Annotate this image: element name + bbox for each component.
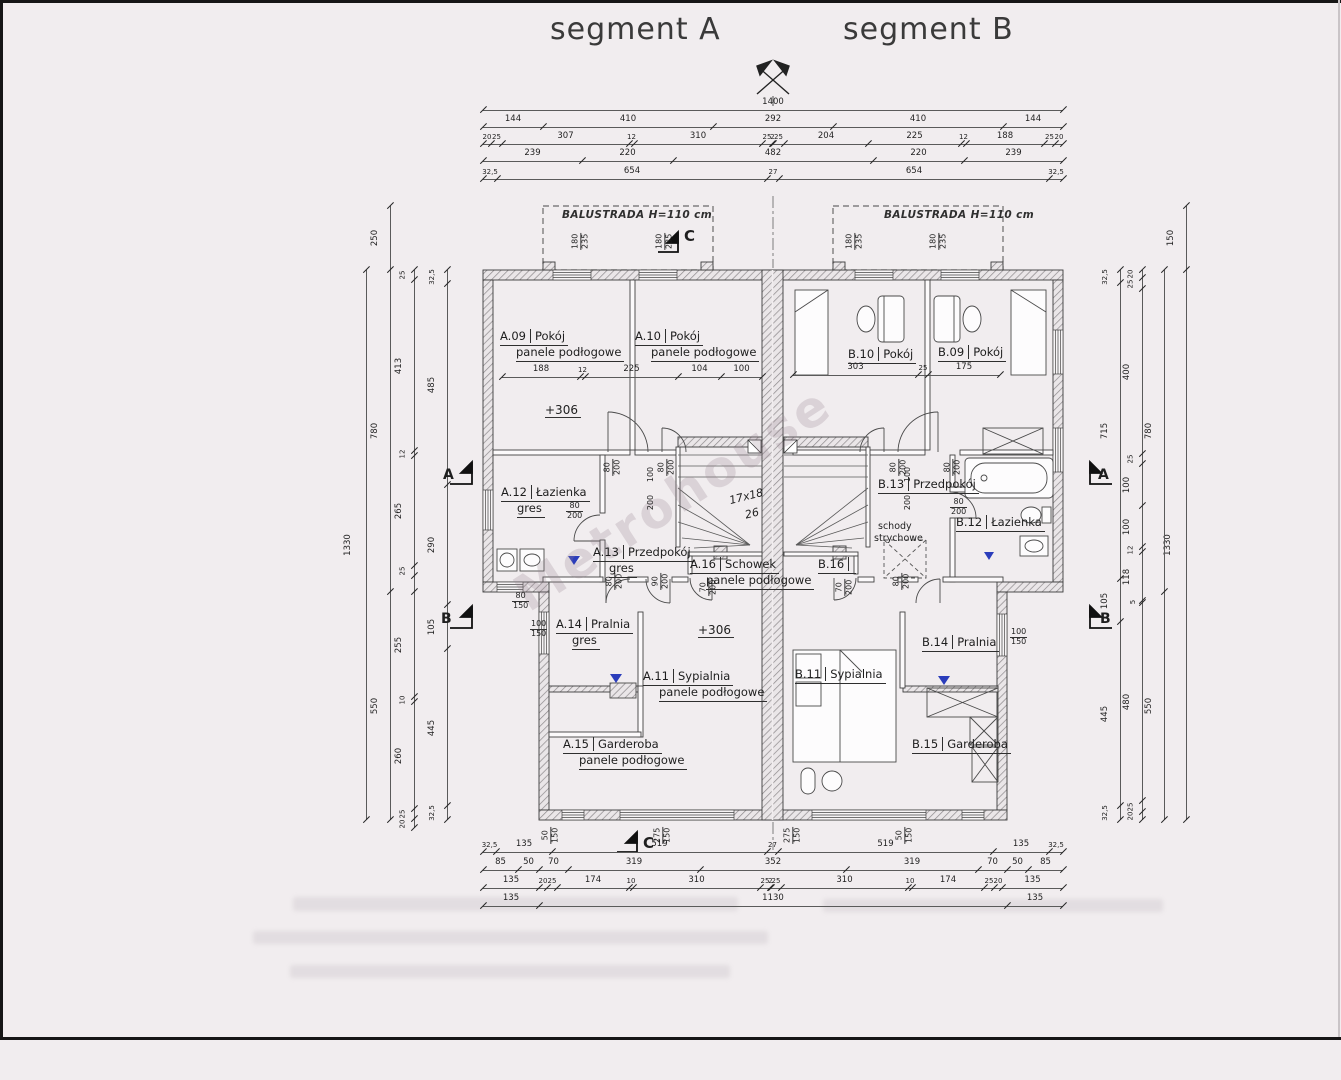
dimension-label: 265 [394, 503, 404, 519]
door-size-label: 180235 [655, 233, 674, 250]
dimension-label: 32,5 [482, 841, 498, 849]
dimension-line [483, 127, 1063, 128]
dimension-label: 32,5 [1101, 269, 1109, 285]
dimension-tick [387, 816, 394, 823]
dimension-label: 25 [399, 567, 407, 576]
dimension-tick [1060, 157, 1067, 164]
dimension-label: 204 [818, 131, 834, 141]
dimension-label: 135 [1024, 875, 1040, 885]
room-label: B.11Sypialnia [795, 668, 886, 684]
dimension-line [483, 161, 1063, 162]
dimension-label: 25 [1127, 802, 1135, 811]
dimension-label: 85 [495, 857, 506, 867]
dimension-label: 135 [1027, 893, 1043, 903]
room-label: A.15Garderobapanele podłogowe [563, 738, 687, 770]
dimension-label: 50 [1012, 857, 1023, 867]
dimension-tick [1060, 140, 1067, 147]
dimension-label: 12 [627, 133, 636, 141]
dimension-label: 310 [836, 875, 852, 885]
dimension-line [483, 888, 1063, 889]
section-letter: C [684, 227, 695, 245]
dimension-label: 144 [505, 114, 521, 124]
dimension-label: 25 [1127, 455, 1135, 464]
dimension-tick [444, 816, 451, 823]
note-label: 200 [903, 495, 912, 510]
dimension-label: 25 [399, 810, 407, 819]
dimension-label: 654 [624, 166, 640, 176]
door-size-label: 70200 [835, 579, 854, 596]
dimension-label: 27 [769, 168, 778, 176]
dimension-label: 290 [427, 537, 437, 553]
dimension-label: 352 [765, 857, 781, 867]
room-label: B.13Przedpokój [878, 478, 979, 494]
note-label: 26 [744, 505, 761, 521]
dimension-label: 70 [548, 857, 559, 867]
room-label: A.11Sypialniapanele podłogowe [643, 670, 767, 702]
dimension-label: 150 [1166, 230, 1176, 246]
dimension-label: 174 [940, 875, 956, 885]
dimension-label: 220 [910, 148, 926, 158]
dimension-label: 12 [578, 366, 587, 374]
dimension-line [1186, 206, 1187, 820]
door-size-label: 50150 [541, 827, 560, 844]
dimension-line [390, 206, 391, 820]
dimension-label: 32,5 [1101, 805, 1109, 821]
door-size-label: 180235 [845, 233, 864, 250]
dimension-label: 135 [503, 893, 519, 903]
dimension-tick [1117, 816, 1124, 823]
dimension-label: 307 [557, 131, 573, 141]
door-size-label: 180235 [929, 233, 948, 250]
room-label: A.16Schowekpanele podłogowe [690, 558, 814, 590]
dimension-label: 10 [906, 877, 915, 885]
section-letter: A [443, 467, 454, 483]
dimension-label: 225 [906, 131, 922, 141]
dimension-label: 20 [1127, 270, 1135, 279]
door-size-label: 50150 [895, 827, 914, 844]
dimension-label: 445 [427, 719, 437, 735]
dimension-label: 25 [548, 877, 557, 885]
dimension-label: 32,5 [428, 269, 436, 285]
dimension-tick [1060, 866, 1067, 873]
dimension-label: 1400 [762, 97, 784, 107]
dimension-label: 255 [394, 636, 404, 652]
dimension-tick [1060, 884, 1067, 891]
room-label: A.13Przedpokójgres [593, 546, 694, 578]
room-label: B.10Pokój [848, 348, 916, 364]
section-letter: B [1100, 611, 1111, 627]
dimension-label: 220 [619, 148, 635, 158]
dimension-label: 410 [620, 114, 636, 124]
dimension-label: 85 [1040, 857, 1051, 867]
dimension-tick [363, 816, 370, 823]
dimension-label: 27 [768, 841, 777, 849]
dimension-label: 32,5 [482, 168, 498, 176]
dimension-label: 12 [399, 449, 407, 458]
section-letter: B [441, 611, 452, 627]
dimension-label: 239 [1005, 148, 1021, 158]
dimension-label: 25 [399, 271, 407, 280]
dimension-label: 413 [394, 357, 404, 373]
dimension-line [483, 906, 1063, 907]
dimension-label: 445 [1100, 706, 1110, 722]
door-size-label: 80200 [603, 459, 622, 476]
door-size-label: 100150 [1010, 628, 1027, 647]
note-label: 200 [646, 495, 655, 510]
dimension-label: 104 [691, 364, 707, 374]
dimension-tick [1060, 175, 1067, 182]
dimension-label: 310 [688, 875, 704, 885]
dimension-line [1164, 270, 1165, 820]
dimension-label: 20 [539, 877, 548, 885]
dimension-label: 260 [394, 747, 404, 763]
dimension-label: 310 [690, 131, 706, 141]
note-label: strychowe [874, 533, 923, 544]
note-label: 17x18 [728, 486, 765, 507]
dimension-label: 20 [399, 819, 407, 828]
door-size-label: 275150 [783, 827, 802, 844]
room-label: B.09Pokój [938, 346, 1006, 362]
door-size-label: 80200 [943, 459, 962, 476]
dimension-tick [759, 373, 766, 380]
room-label: B.14Pralnia [922, 636, 999, 652]
dimension-label: 20 [994, 877, 1003, 885]
dimension-label: 188 [533, 364, 549, 374]
dimension-label: 25 [774, 133, 783, 141]
note-label: 100 [646, 467, 655, 482]
dimension-label: 519 [877, 839, 893, 849]
dimension-label: 480 [1122, 694, 1132, 710]
dimension-line [414, 270, 415, 828]
dimension-label: 12 [1127, 545, 1135, 554]
dimension-label: 485 [427, 376, 437, 392]
dimension-label: 32,5 [1048, 168, 1064, 176]
dimension-line [366, 270, 367, 820]
dimension-label: 25 [492, 133, 501, 141]
door-size-label: 80200 [950, 498, 967, 517]
dimension-label: 1330 [343, 534, 353, 556]
dimension-label: 25 [1127, 279, 1135, 288]
dimension-tick [997, 371, 1004, 378]
dimension-label: 105 [1100, 592, 1110, 608]
dimension-label: 105 [427, 619, 437, 635]
room-label: A.12Łazienkagres [501, 486, 590, 518]
dimension-label: 144 [1025, 114, 1041, 124]
door-size-label: 275150 [653, 827, 672, 844]
dimension-label: 50 [523, 857, 534, 867]
dimension-label: 550 [1144, 698, 1154, 714]
dimension-label: 1130 [762, 893, 784, 903]
dimension-tick [1161, 816, 1168, 823]
dimension-label: 482 [765, 148, 781, 158]
dimension-label: 10 [627, 877, 636, 885]
dimension-tick [411, 824, 418, 831]
section-letter: A [1098, 467, 1109, 483]
level-marker: +306 [698, 623, 734, 638]
dimension-label: 550 [370, 698, 380, 714]
dimension-line [483, 852, 1063, 853]
room-label: A.09Pokójpanele podłogowe [500, 330, 624, 362]
dimension-label: 250 [370, 230, 380, 246]
level-marker: +306 [545, 403, 581, 418]
dimension-label: 25 [985, 877, 994, 885]
dimension-label: 10 [399, 695, 407, 704]
dimension-label: 715 [1100, 423, 1110, 439]
dimension-line [483, 110, 1063, 111]
dimension-label: 400 [1122, 363, 1132, 379]
dimension-label: 70 [987, 857, 998, 867]
dimension-label: 135 [1013, 839, 1029, 849]
dimension-line [1120, 270, 1121, 820]
dimension-tick [1139, 816, 1146, 823]
dimension-label: 20 [1055, 133, 1064, 141]
dimension-label: 12 [959, 133, 968, 141]
dimension-label: 32,5 [428, 805, 436, 821]
dimension-label: 175 [956, 362, 972, 372]
dimension-tick [1060, 123, 1067, 130]
dimension-label: 20 [483, 133, 492, 141]
dimension-label: 780 [1144, 423, 1154, 439]
door-size-label: 80150 [512, 592, 529, 611]
dimension-label: 292 [765, 114, 781, 124]
dimension-label: 225 [623, 364, 639, 374]
dimension-label: 188 [997, 131, 1013, 141]
dimension-label: 5 [1129, 600, 1137, 604]
dimension-label: 32,5 [1048, 841, 1064, 849]
door-size-label: 80200 [657, 459, 676, 476]
dimension-tick [1060, 902, 1067, 909]
note-label: schody [878, 521, 912, 532]
dimension-label: 100 [1122, 477, 1132, 493]
floor-plan-page: { "page": { "title_a": "segment A", "tit… [0, 0, 1341, 1080]
dimension-tick [1183, 816, 1190, 823]
dimension-label: 135 [516, 839, 532, 849]
door-size-label: 100150 [530, 620, 547, 639]
dimension-label: 25 [919, 364, 928, 372]
dimension-label: 319 [626, 857, 642, 867]
dimension-label: 25 [772, 877, 781, 885]
room-label: A.14Pralniagres [556, 618, 633, 650]
dimension-label: 135 [503, 875, 519, 885]
dimension-tick [1060, 848, 1067, 855]
dimension-label: 239 [524, 148, 540, 158]
dimension-line [793, 375, 1000, 376]
dimension-label: 174 [585, 875, 601, 885]
room-label: B.12Łazienka [956, 516, 1045, 532]
dimension-label: 25 [1045, 133, 1054, 141]
door-size-label: 180235 [571, 233, 590, 250]
room-label: B.15Garderoba [912, 738, 1011, 754]
dimension-label: 20 [1127, 812, 1135, 821]
dimension-label: 319 [904, 857, 920, 867]
dimension-line [502, 377, 762, 378]
dimension-label: 100 [1122, 518, 1132, 534]
door-size-label: 80200 [892, 573, 911, 590]
dimension-label: 654 [906, 166, 922, 176]
dimension-tick [1060, 106, 1067, 113]
room-label: A.10Pokójpanele podłogowe [635, 330, 759, 362]
dimension-label: 100 [733, 364, 749, 374]
section-letter: C [643, 834, 654, 852]
dimension-line [447, 270, 448, 820]
annotation-layer: 1400144410292410144202530712310252252042… [0, 0, 1341, 1080]
dimension-label: 410 [910, 114, 926, 124]
dimension-label: 780 [370, 423, 380, 439]
room-label: B.16 [818, 558, 856, 574]
dimension-line [483, 179, 1063, 180]
